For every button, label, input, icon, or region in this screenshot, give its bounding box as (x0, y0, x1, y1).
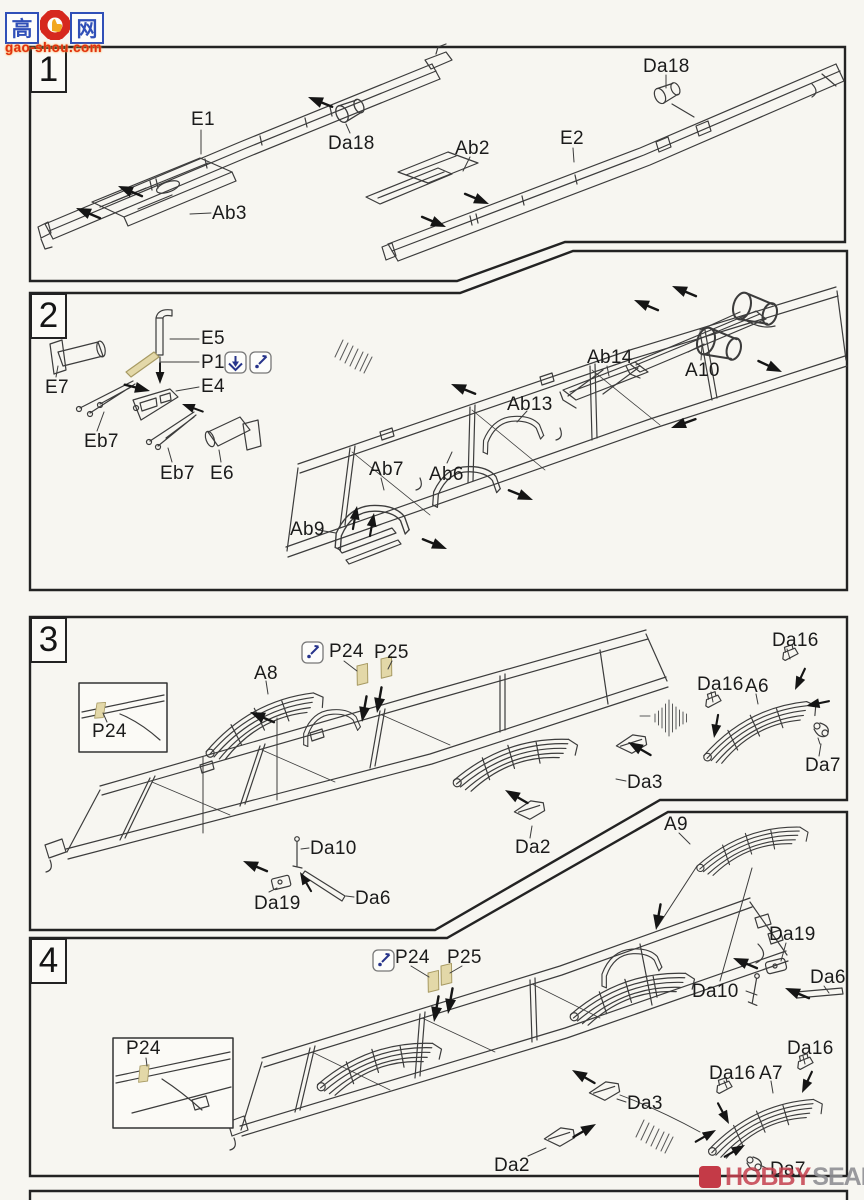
part-label: A6 (745, 677, 769, 696)
e6-cylinder (204, 417, 261, 450)
instruction-sheet-page: 1 2 3 4 E1 Da18 Ab3 Ab2 E2 Da18 E5 P1 E4… (0, 0, 864, 1200)
etch-p24-3 (354, 662, 370, 687)
part-label: Da3 (627, 1094, 663, 1113)
frame-step2 (286, 287, 847, 557)
box-da19-3 (271, 875, 291, 890)
crossmember-ab13 (477, 411, 545, 455)
glue-icon (250, 352, 271, 373)
part-label: E5 (201, 329, 225, 348)
bend-icon (225, 352, 246, 373)
etch-p24-4 (425, 969, 441, 994)
part-label: Eb7 (160, 464, 195, 483)
part-label: Da6 (355, 889, 391, 908)
part-label: Da3 (627, 773, 663, 792)
hobby-search-word2: SEARCH (812, 1163, 864, 1192)
instruction-icons (225, 352, 394, 971)
step-1-diagram (38, 44, 844, 261)
part-da18-b (652, 80, 682, 105)
part-label: Ab13 (507, 395, 553, 414)
rail-e2 (382, 64, 844, 261)
assembly-arrows-1 (74, 92, 491, 232)
part-label: P25 (447, 948, 482, 967)
part-label: Da16 (697, 675, 744, 694)
plate-ab2 (366, 152, 478, 204)
part-label: Eb7 (84, 432, 119, 451)
step-2-diagram (50, 281, 847, 564)
wedge-da2-3 (513, 799, 546, 822)
part-label: Da2 (515, 838, 551, 857)
part-label: Ab7 (369, 460, 404, 479)
mounted-spring-4a (311, 1031, 445, 1100)
step-number-4: 4 (30, 938, 67, 984)
eb7-arms-2 (147, 412, 197, 450)
part-label: Ab2 (455, 139, 490, 158)
hobby-search-word1: HOBBY (725, 1163, 810, 1192)
part-label: Da18 (643, 57, 690, 76)
part-label: A10 (685, 361, 720, 380)
part-label: Ab9 (290, 520, 325, 539)
step-number-3: 3 (30, 617, 67, 663)
part-label: E6 (210, 464, 234, 483)
glue-icon (302, 642, 323, 663)
part-label: P24 (329, 642, 364, 661)
part-label: Da19 (254, 894, 301, 913)
part-label: P24 (395, 948, 430, 967)
glue-icon (373, 950, 394, 971)
part-label: Da16 (709, 1064, 756, 1083)
hobby-search-watermark: HOBBY SEARCH (699, 1163, 864, 1191)
part-label: Da16 (772, 631, 819, 650)
part-label: P24 (92, 722, 127, 741)
frame-arch-3 (297, 704, 362, 748)
part-label: E2 (560, 129, 584, 148)
diagram-canvas (0, 0, 864, 1200)
step-number-2: 2 (30, 293, 67, 339)
part-label: A7 (759, 1064, 783, 1083)
mold-mark-4 (636, 1120, 673, 1153)
part-label: Da10 (692, 982, 739, 1001)
frame-step4 (228, 898, 788, 1150)
part-label: E4 (201, 377, 225, 396)
rod-da10-3 (293, 837, 302, 868)
step-3-diagram (45, 630, 830, 901)
spring-a7 (701, 1087, 828, 1163)
box-da19-4 (765, 958, 787, 974)
part-label: A8 (254, 664, 278, 683)
panel-3-border (30, 617, 847, 930)
e5-pin (156, 310, 172, 355)
part-label: Ab6 (429, 465, 464, 484)
mounted-spring-4b (564, 961, 698, 1030)
a8-drop-lines (203, 718, 277, 833)
part-label: A9 (664, 815, 688, 834)
part-label: Da16 (787, 1039, 834, 1058)
hobby-search-icon (699, 1166, 721, 1188)
rod-da10-4 (748, 973, 762, 1005)
e7-cylinder (50, 340, 107, 374)
mold-mark-2 (335, 340, 372, 373)
mold-mark-3 (640, 700, 687, 736)
part-label: Da2 (494, 1156, 530, 1175)
part-label: P25 (374, 643, 409, 662)
part-label: Ab14 (587, 348, 633, 367)
part-label: Da6 (810, 968, 846, 987)
gao-shou-domain: gao-shou.com (5, 40, 102, 55)
gao-shou-watermark: 高 网 gao-shou.com (4, 6, 124, 58)
wedge-da2-4 (543, 1126, 576, 1149)
assembly-arrows-2 (123, 281, 784, 554)
part-label: E1 (191, 110, 215, 129)
part-label: P1 (201, 353, 225, 372)
part-label: Da19 (769, 925, 816, 944)
panel-2-border (30, 251, 847, 590)
part-label: Da18 (328, 134, 375, 153)
part-label: Da10 (310, 839, 357, 858)
e4-bracket (133, 389, 178, 420)
part-label: E7 (45, 378, 69, 397)
shackle-da7-3 (814, 723, 828, 737)
part-label: Ab3 (212, 204, 247, 223)
part-label: Da7 (805, 756, 841, 775)
panel-5-border-partial (30, 1191, 847, 1200)
p1-etch-part (126, 352, 159, 377)
panel-borders (30, 47, 847, 1200)
eb7-arms-1 (77, 381, 136, 417)
part-label: P24 (126, 1039, 161, 1058)
da18-link-line (672, 104, 694, 117)
